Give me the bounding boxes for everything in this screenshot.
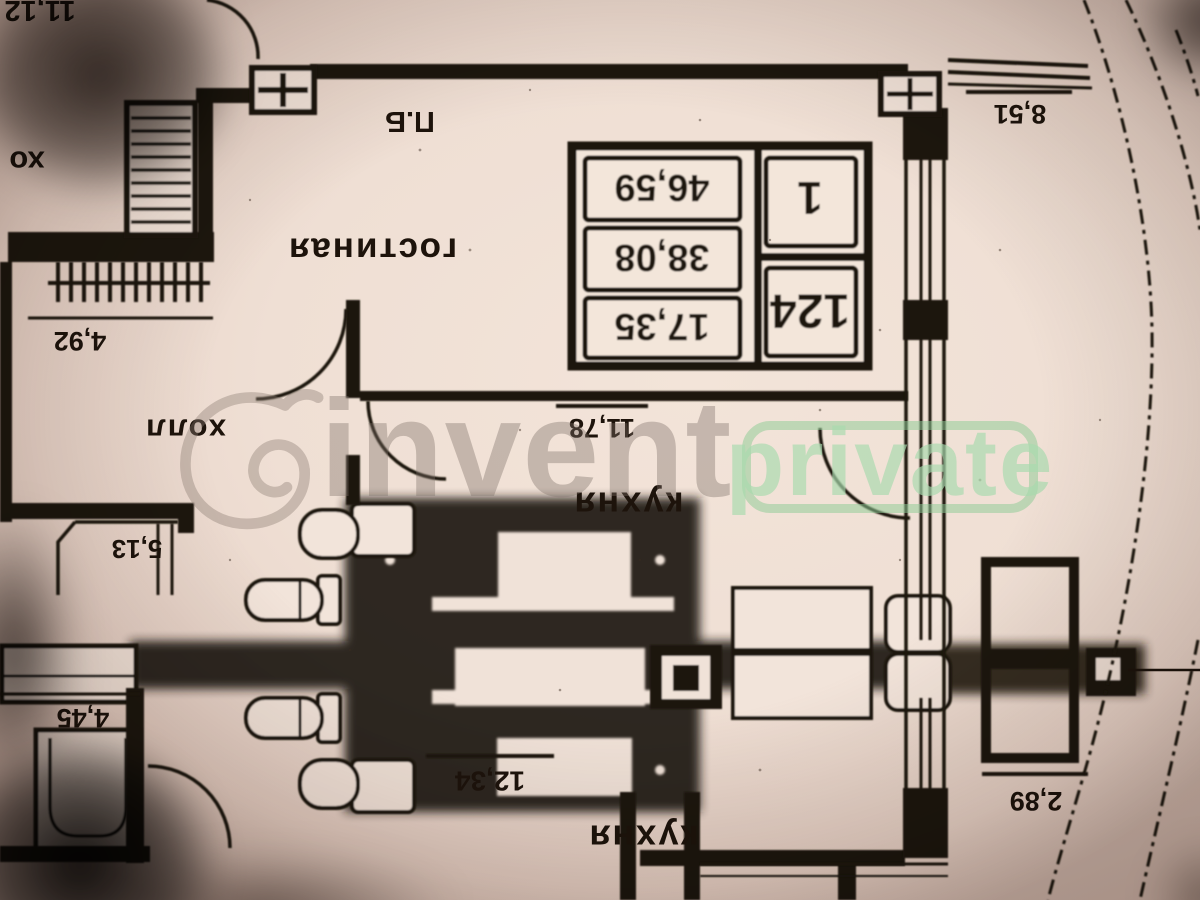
ladder-icon <box>127 103 195 235</box>
area-bath-bottom: 4,45 <box>57 703 110 733</box>
area-balcony-top: 8,51 <box>994 99 1047 129</box>
label-pb: П.Б <box>385 105 435 137</box>
vent-shaft-inner-box <box>650 645 722 709</box>
stamp-room-count: 1 <box>797 172 823 224</box>
chain-line-main <box>1048 0 1152 900</box>
balcony-slab-lines <box>948 60 1092 88</box>
area-hall: 4,92 <box>54 326 107 356</box>
stamp-total-area: 46,59 <box>614 166 709 208</box>
label-living-room: гостиная <box>287 231 457 270</box>
door-arc-balcony-top <box>207 0 258 59</box>
wall-top <box>310 64 908 79</box>
area-bath-top: 5,13 <box>112 534 163 564</box>
chain-line-upper <box>1126 0 1200 230</box>
watermark-badge: private <box>742 421 1038 513</box>
stair-hatch <box>28 262 213 318</box>
floor-plan-photo: 46,59 38,08 17,35 1 124 гостиная холл ку… <box>0 0 1200 900</box>
label-partial-room: хо <box>9 145 44 180</box>
stamp-table: 46,59 38,08 17,35 1 124 <box>572 146 868 366</box>
wall-bath-bottom-right <box>126 688 144 863</box>
watermark-brand: invent <box>320 380 732 518</box>
balcony-chain-lines <box>1048 0 1200 900</box>
area-kitchen-bottom: 12,34 <box>455 766 525 797</box>
label-kitchen-bottom: кухня <box>587 818 698 859</box>
vent-cross-box-right <box>881 74 939 114</box>
watermark-badge-label: private <box>726 415 1055 511</box>
watermark-logo-icon <box>170 384 326 536</box>
vent-cross-box-left <box>252 68 314 112</box>
stamp-living-area: 17,35 <box>614 305 709 347</box>
shaft-box-right-top <box>986 562 1074 654</box>
label-corner-value: 11,12 <box>5 0 76 26</box>
chain-line-corner <box>1176 30 1198 96</box>
bathtub-icon <box>36 730 140 852</box>
stamp-apartment-number: 124 <box>770 284 850 337</box>
toilet-icon-bottom <box>300 760 414 812</box>
stamp-usable-area: 38,08 <box>614 236 709 278</box>
kitchen-counter-bottom <box>733 654 950 718</box>
wall-hall-bottom <box>0 503 185 519</box>
chain-line-lower <box>1140 640 1198 900</box>
sink-icon-top <box>246 576 340 624</box>
door-arc-bath-bottom <box>148 766 230 848</box>
area-balcony-bottom: 2,89 <box>1010 786 1063 816</box>
kitchen-counter-top <box>733 588 950 652</box>
sink-icon-bottom <box>246 694 340 742</box>
